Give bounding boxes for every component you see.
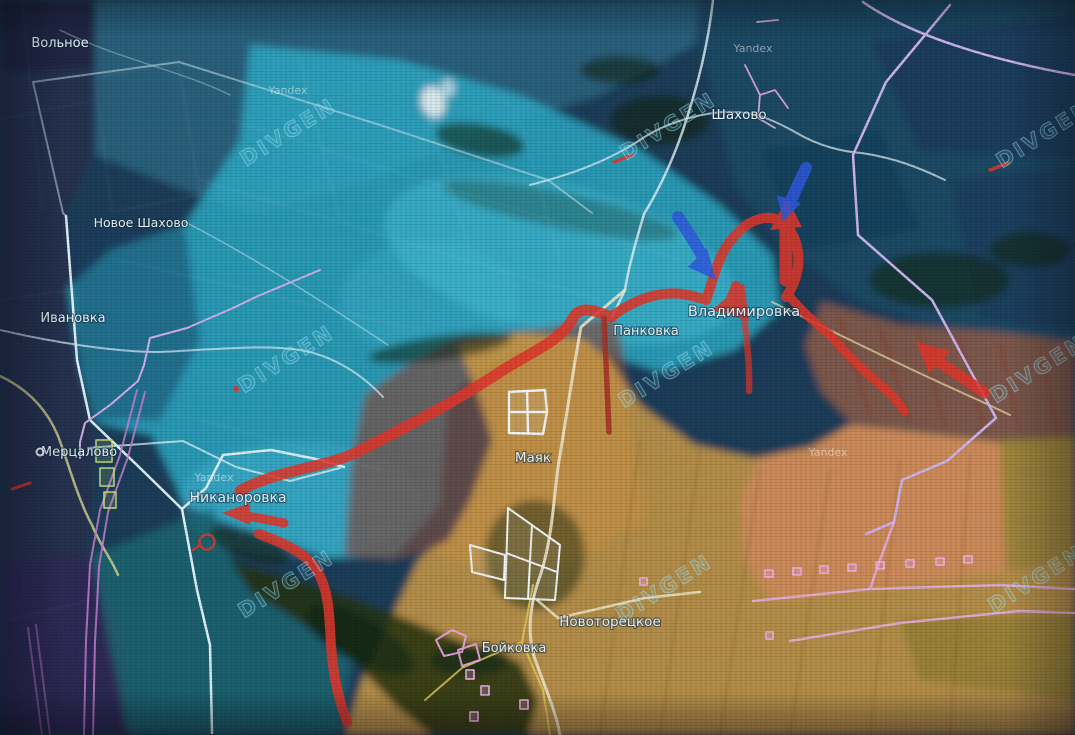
settlement-label-volnoe: Вольное (31, 36, 88, 51)
settlement-label-novotoretskoe: Новоторецкое (559, 614, 661, 630)
settlement-label-boykovka: Бойковка (482, 641, 547, 656)
settlement-label-nikanorovka: Никаноровка (189, 490, 286, 506)
settlement-label-mayak: Маяк (515, 450, 551, 466)
settlement-label-mertsalovo: Мерцалово (41, 445, 117, 460)
settlement-label-novoe-shakhovo: Новое Шахово (94, 215, 189, 230)
settlement-label-shakhovo: Шахово (711, 107, 766, 123)
yandex-watermark: Yandex (268, 84, 308, 97)
settlement-label-pankovka: Панковка (613, 324, 679, 339)
yandex-watermark: Yandex (808, 446, 848, 459)
yandex-watermark: Yandex (194, 471, 234, 484)
annotated-war-map-photo[interactable]: Вольное Новое Шахово Шахово Ивановка Мер… (0, 0, 1075, 735)
map-canvas: Вольное Новое Шахово Шахово Ивановка Мер… (0, 0, 1075, 735)
settlement-label-ivanovka: Ивановка (40, 311, 105, 326)
settlement-label-vladimirovka: Владимировка (688, 304, 800, 320)
red-dot (233, 386, 239, 392)
zone-layer (0, 0, 1075, 735)
yandex-watermark: Yandex (733, 42, 773, 55)
